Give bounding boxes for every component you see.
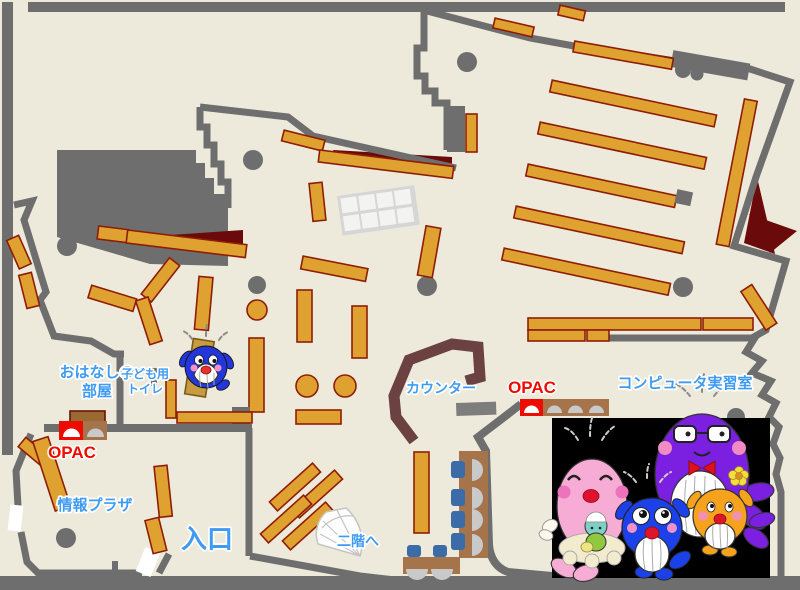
doorway [8, 504, 24, 531]
bookshelf [528, 318, 701, 330]
bookshelf [297, 290, 312, 342]
pillar [457, 52, 477, 72]
bookshelf [309, 182, 326, 221]
bookshelf [136, 297, 163, 345]
shelf-end-block [675, 189, 694, 206]
bookshelf [703, 318, 753, 330]
mascot-glasses [708, 426, 730, 442]
library-floor-map: おはなしの 部屋 子ども用 トイレ OPAC 情報プラザ 入口 二階へ カウンタ… [0, 0, 800, 590]
pillar [57, 236, 77, 256]
pillar [248, 276, 266, 294]
label-opac-left: OPAC [48, 443, 96, 462]
reading-table-grid [337, 185, 420, 235]
bookshelf [573, 41, 673, 69]
bookshelf [194, 276, 213, 330]
bookshelf [177, 412, 252, 423]
wall-block [447, 106, 465, 152]
pillar [673, 277, 693, 297]
wall-plaza-bottom [21, 532, 142, 573]
bookshelf [352, 306, 367, 358]
bookshelf [154, 465, 172, 517]
pillar [56, 528, 76, 548]
label-opac-center: OPAC [508, 378, 556, 397]
label-info-plaza: 情報プラザ [57, 496, 132, 514]
chair-blue [451, 489, 465, 506]
bookshelf [502, 248, 671, 295]
bookshelf [514, 206, 685, 253]
study-desk-area [403, 451, 488, 580]
bookshelf [141, 258, 180, 302]
chair-blue [451, 461, 465, 478]
bookshelf [538, 122, 707, 169]
bookshelf [587, 330, 609, 341]
wall-steps-top-center [417, 8, 447, 150]
bookshelf [19, 272, 40, 308]
bookshelf [528, 330, 585, 341]
bookshelf [526, 164, 677, 207]
round-table [296, 375, 318, 397]
wall-desk-area [478, 404, 552, 576]
pillar [691, 68, 704, 81]
bookshelf [550, 80, 717, 127]
label-stairs: 二階へ [337, 533, 379, 549]
label-kids-toilet-line2: トイレ [127, 382, 163, 396]
bookshelf [97, 226, 128, 243]
outer-wall-top [28, 2, 785, 12]
round-table [334, 375, 356, 397]
opac-station-left [59, 421, 107, 440]
bench [456, 402, 496, 416]
opac-station-center [520, 399, 609, 416]
pillar [675, 62, 691, 78]
bookshelf [88, 285, 137, 311]
bookshelf [166, 380, 176, 418]
bookshelf [249, 338, 264, 412]
bookshelf [301, 256, 368, 281]
bookshelf [296, 410, 341, 424]
round-table [247, 300, 267, 320]
pillar [417, 276, 437, 296]
label-counter: カウンター [406, 380, 476, 396]
mascot-glasses [674, 426, 696, 442]
wall-door-jamb [159, 554, 169, 573]
bookshelf [466, 114, 477, 152]
label-entrance: 入口 [181, 524, 233, 554]
floor-map-canvas: おはなしの 部屋 子ども用 トイレ OPAC 情報プラザ 入口 二階へ カウンタ… [0, 0, 800, 590]
bookshelf [417, 226, 440, 278]
chair-blue [433, 545, 447, 557]
bookshelf [282, 130, 325, 151]
chair-blue [451, 533, 465, 550]
bookshelf [414, 452, 429, 533]
label-computer-room: コンピュータ実習室 [617, 374, 752, 392]
label-kids-toilet-line1: 子ども用 [121, 367, 169, 381]
mascot-blue-whale-floor-icon [177, 325, 237, 392]
pillar [243, 150, 263, 170]
label-storytelling-room-line2: 部屋 [82, 382, 112, 400]
chair-blue [451, 511, 465, 528]
chair-blue [407, 545, 421, 557]
outer-wall-left [2, 2, 13, 455]
